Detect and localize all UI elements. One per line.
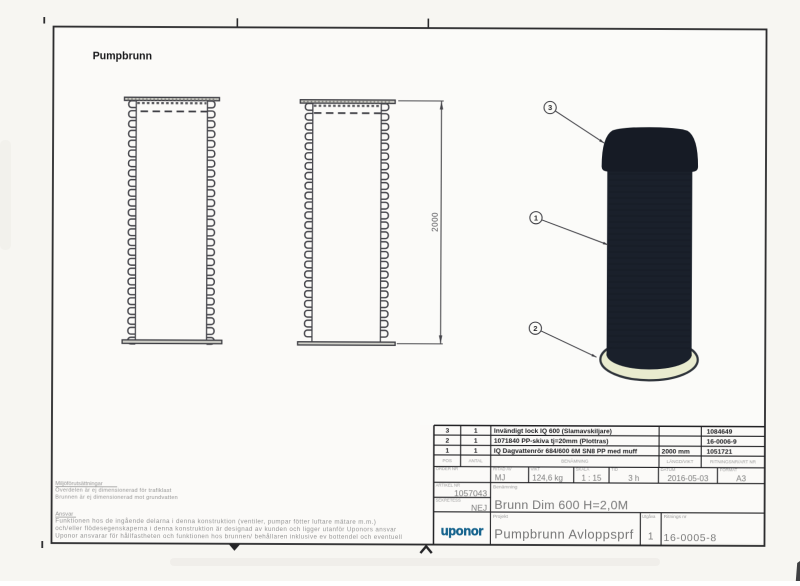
svg-text:16-0006-9: 16-0006-9: [707, 439, 737, 446]
svg-text:SEKRETESS: SEKRETESS: [436, 498, 461, 503]
svg-text:Pumpbrunn: Pumpbrunn: [93, 50, 152, 62]
svg-text:1084649: 1084649: [707, 428, 733, 435]
svg-text:1: 1: [474, 428, 478, 435]
svg-text:1: 1: [474, 448, 478, 455]
svg-text:TID: TID: [611, 467, 618, 472]
svg-text:IQ Dagvattenrör 684/600 6M SN8: IQ Dagvattenrör 684/600 6M SN8 PP med mu…: [494, 448, 638, 456]
svg-text:1071840 PP-skiva tj=20mm (Pl: 1071840 PP-skiva tj=20mm (Plottras): [494, 438, 609, 445]
svg-text:3: 3: [548, 103, 552, 112]
svg-text:3: 3: [445, 427, 449, 434]
svg-text:ARTIKEL NR: ARTIKEL NR: [436, 483, 460, 488]
svg-text:1051721: 1051721: [707, 449, 733, 456]
svg-text:Projekt: Projekt: [493, 514, 509, 520]
svg-text:1: 1: [534, 213, 538, 222]
svg-text:2000: 2000: [431, 212, 440, 232]
svg-text:VIKT: VIKT: [531, 466, 541, 471]
svg-text:1: 1: [445, 448, 449, 455]
svg-text:1: 1: [474, 438, 478, 445]
svg-text:RITNINGSNR/ART NR: RITNINGSNR/ART NR: [710, 459, 757, 464]
svg-text:uponor: uponor: [441, 523, 484, 538]
svg-text:3 h: 3 h: [628, 474, 639, 483]
svg-text:DATUM: DATUM: [661, 467, 676, 472]
svg-text:SKALA: SKALA: [576, 467, 590, 472]
svg-text:Uponor ansvarar för hållfasthe: Uponor ansvarar för hållfastheten och fu…: [55, 532, 402, 540]
svg-text:124,6 kg: 124,6 kg: [532, 474, 563, 483]
svg-text:Benämning: Benämning: [493, 484, 518, 490]
svg-text:Miljöförutsättningar: Miljöförutsättningar: [55, 481, 102, 487]
svg-text:2: 2: [445, 438, 449, 445]
svg-text:FORMAT: FORMAT: [720, 467, 738, 472]
svg-text:16-0005-8: 16-0005-8: [663, 532, 716, 544]
svg-text:MJ: MJ: [495, 474, 506, 483]
svg-text:Utgåva: Utgåva: [642, 514, 656, 519]
svg-text:Brunn Dim 600 H=2,0M: Brunn Dim 600 H=2,0M: [494, 498, 628, 513]
svg-text:Ritnings nr: Ritnings nr: [664, 514, 687, 520]
svg-text:ORDER NR: ORDER NR: [436, 466, 458, 471]
svg-text:2: 2: [533, 324, 537, 333]
svg-text:LÄNGD/VIKT: LÄNGD/VIKT: [667, 458, 694, 464]
svg-text:Överdelen är ej dimensionerad: Överdelen är ej dimensionerad för trafik…: [55, 486, 171, 493]
svg-text:Invändigt lock IQ 600 (Slamavs: Invändigt lock IQ 600 (Slamavskiljare): [494, 428, 612, 435]
svg-text:2016-05-03: 2016-05-03: [667, 474, 709, 483]
svg-text:1 : 15: 1 : 15: [581, 474, 602, 483]
svg-text:POS: POS: [442, 458, 452, 463]
svg-text:ANTAL: ANTAL: [469, 458, 484, 463]
svg-text:RITAD AV: RITAD AV: [493, 466, 512, 471]
svg-text:2000 mm: 2000 mm: [662, 449, 690, 456]
svg-text:A3: A3: [736, 475, 746, 484]
svg-text:1: 1: [648, 531, 654, 542]
svg-text:Brunnen är ej dimensionerad mo: Brunnen är ej dimensionerad mot grundvat…: [55, 495, 178, 501]
svg-text:Pumpbrunn Avloppsprf: Pumpbrunn Avloppsprf: [494, 526, 633, 542]
svg-text:BENÄMNING: BENÄMNING: [561, 458, 589, 464]
svg-text:NEJ: NEJ: [471, 503, 487, 513]
